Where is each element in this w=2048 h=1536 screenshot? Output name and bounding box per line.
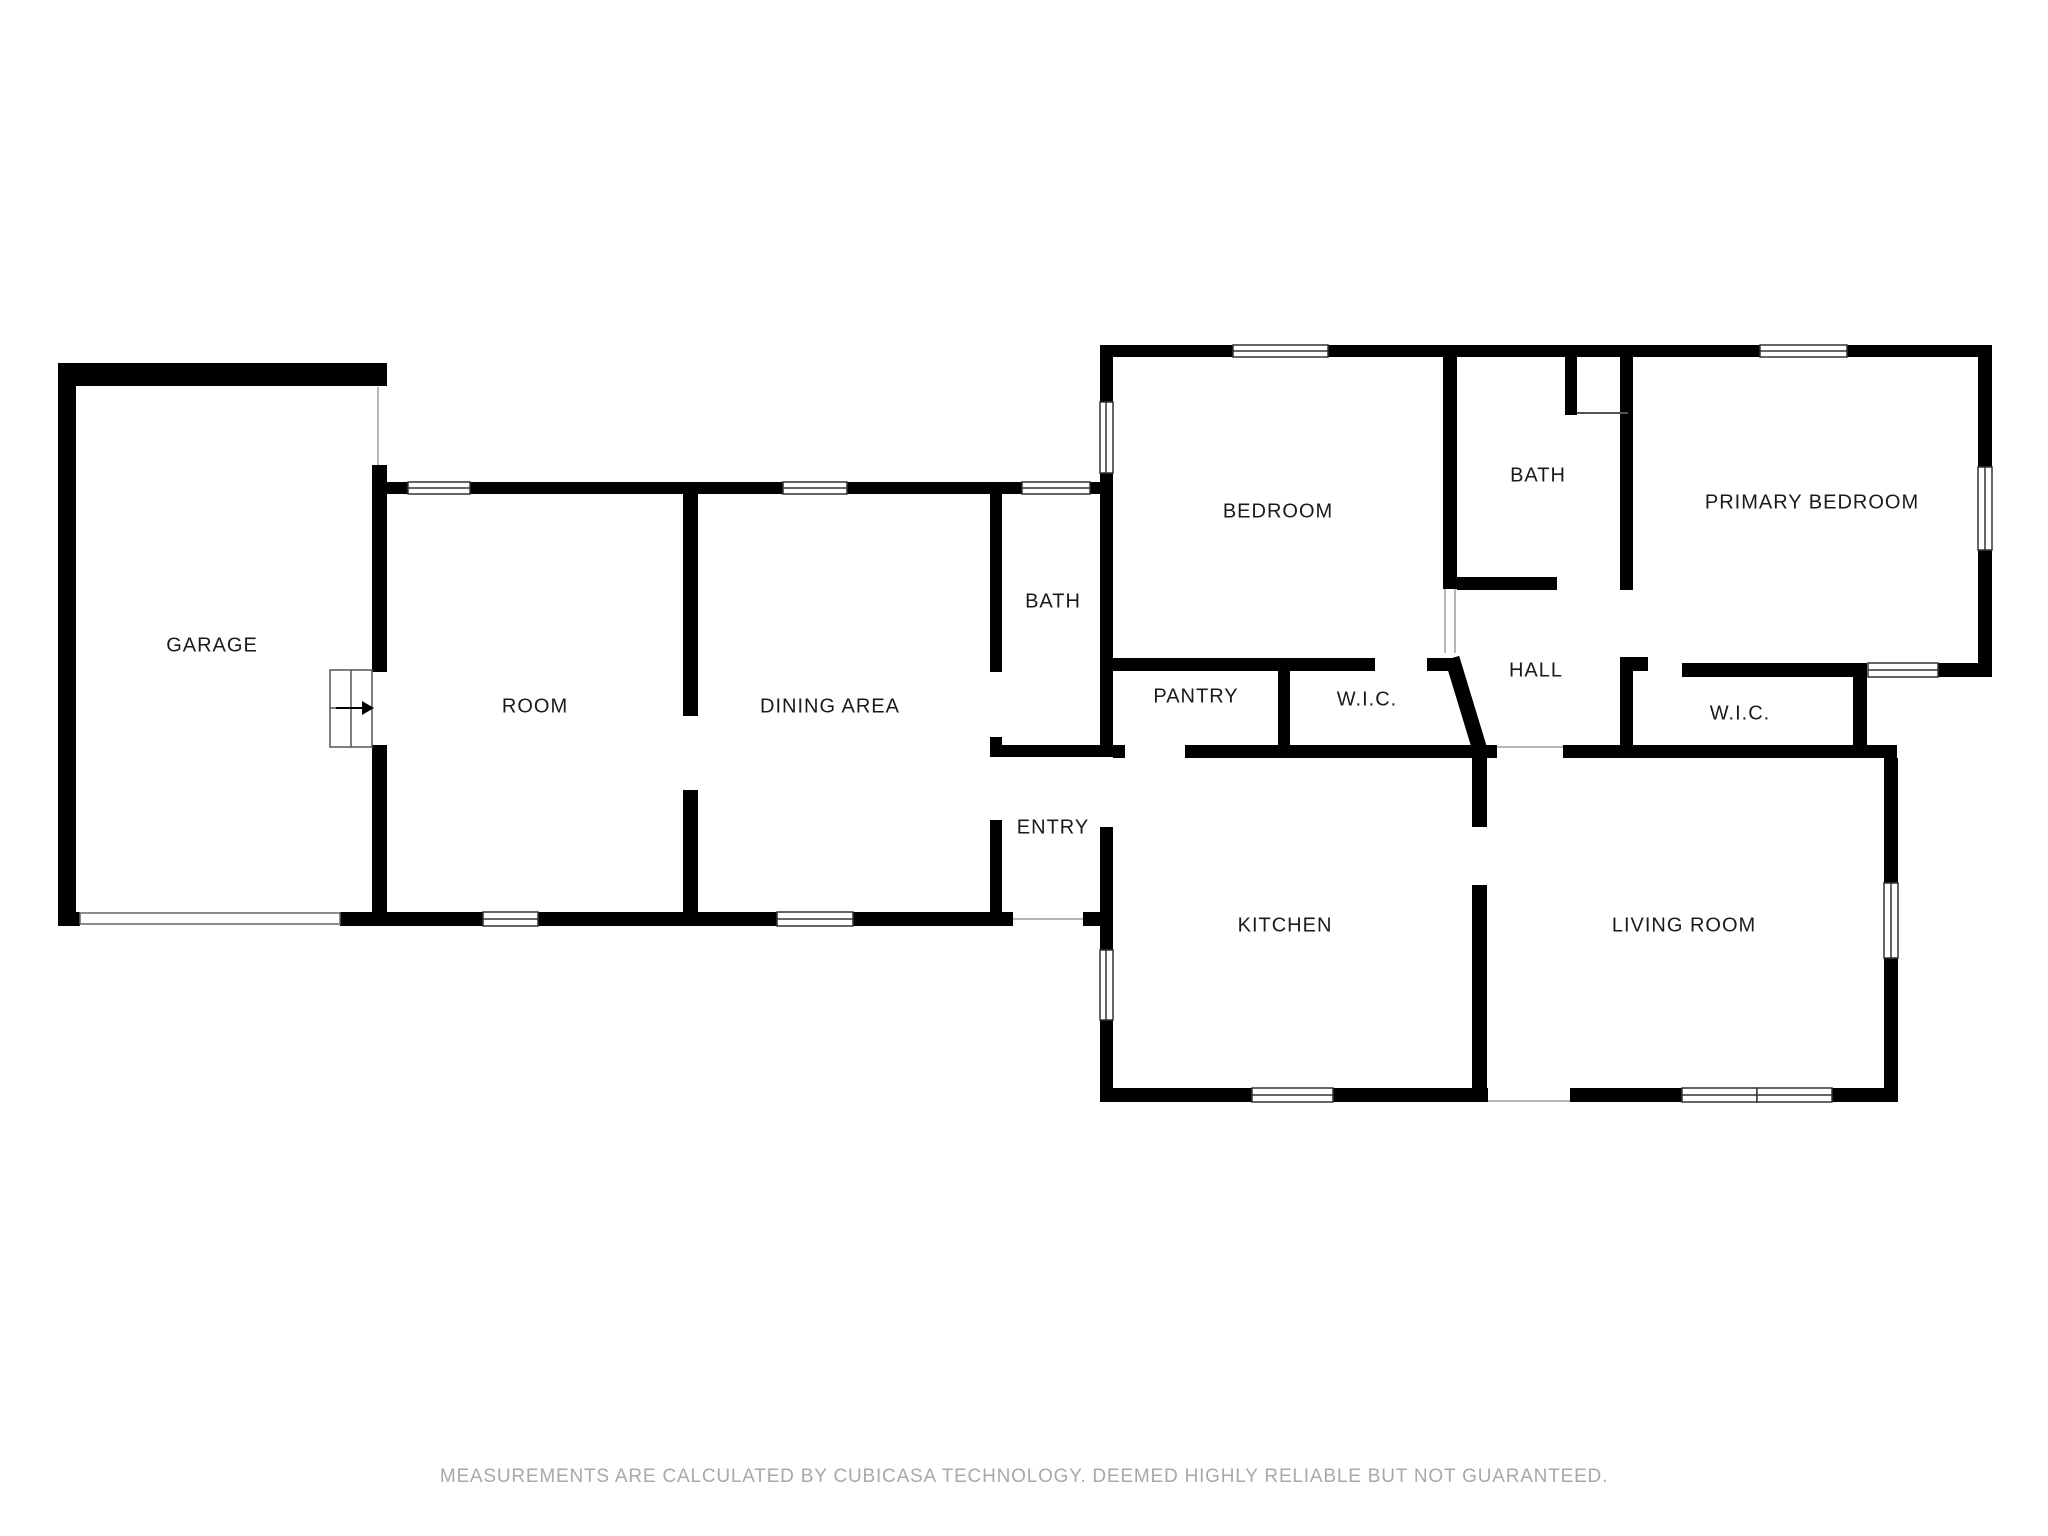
window-kitchen-bottom xyxy=(1252,1088,1333,1102)
label-bath-2: BATH xyxy=(1510,465,1566,488)
label-pantry: PANTRY xyxy=(1153,686,1238,709)
window-primary-right xyxy=(1978,467,1992,550)
label-primary-bedroom: PRIMARY BEDROOM xyxy=(1705,492,1919,515)
disclaimer-text: MEASUREMENTS ARE CALCULATED BY CUBICASA … xyxy=(440,1466,1608,1488)
label-living-room: LIVING ROOM xyxy=(1612,915,1756,938)
door-opening-lines xyxy=(378,387,1570,1101)
window-bath1-top xyxy=(1022,482,1090,494)
window-bedroom-top xyxy=(1233,345,1328,357)
label-hall: HALL xyxy=(1509,660,1563,683)
window-room-bottom xyxy=(483,912,538,926)
label-room: ROOM xyxy=(502,696,568,719)
label-garage: GARAGE xyxy=(166,635,258,658)
window-living-right xyxy=(1884,883,1898,958)
window-primary-top xyxy=(1760,345,1847,357)
label-dining-area: DINING AREA xyxy=(760,696,900,719)
label-wic-2: W.I.C. xyxy=(1710,703,1770,726)
window-dining-bottom xyxy=(777,912,853,926)
label-entry: ENTRY xyxy=(1017,817,1089,840)
window-bedroom-left xyxy=(1100,402,1113,473)
window-living-bottom-right xyxy=(1757,1088,1832,1102)
garage-door xyxy=(80,913,340,924)
window-room-top xyxy=(408,482,470,494)
label-wic-1: W.I.C. xyxy=(1337,689,1397,712)
window-dining-top xyxy=(783,482,847,494)
window-primary-bottom xyxy=(1868,663,1938,677)
floor-plan-drawing xyxy=(0,0,2048,1536)
label-bath-1: BATH xyxy=(1025,591,1081,614)
floor-plan-page: GARAGE ROOM DINING AREA BATH ENTRY BEDRO… xyxy=(0,0,2048,1536)
diagonal-wall xyxy=(1452,658,1480,750)
label-kitchen: KITCHEN xyxy=(1238,915,1333,938)
window-living-bottom-left xyxy=(1682,1088,1757,1102)
label-bedroom: BEDROOM xyxy=(1223,501,1333,524)
window-kitchen-left xyxy=(1100,950,1113,1020)
